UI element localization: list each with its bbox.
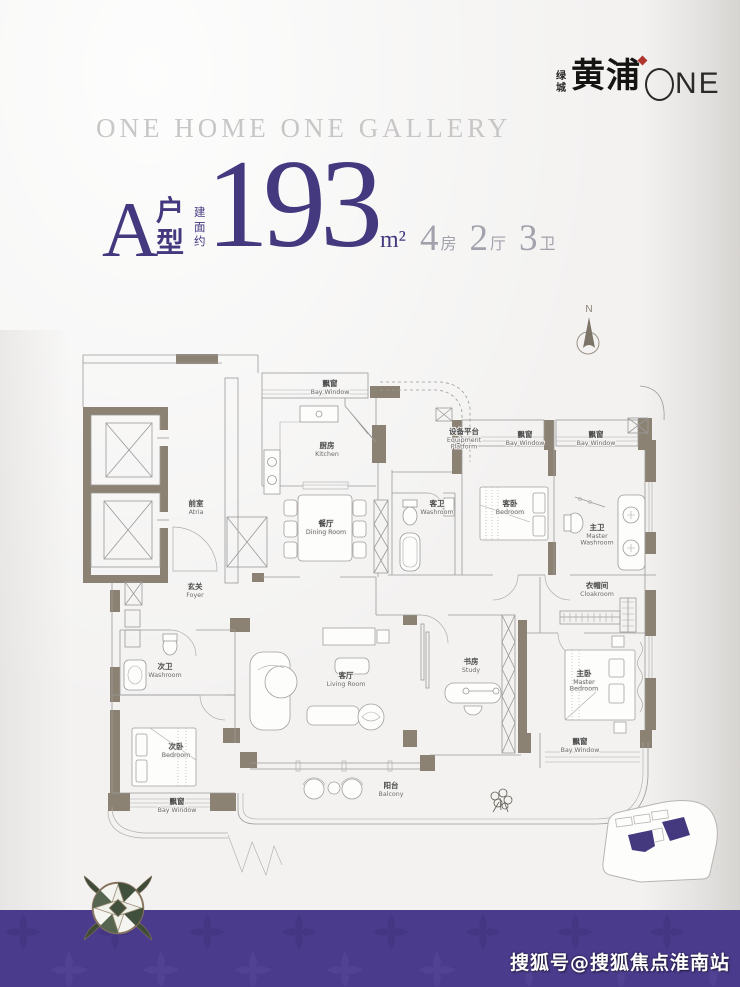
room-sublabel-washroom: Washroom: [420, 509, 453, 516]
room-sublabel-equipment-platform: Platform: [451, 444, 478, 451]
room-label-washroom: 次卫: [158, 661, 173, 671]
room-label-kitchen: 厨房: [320, 440, 335, 450]
room-label-atria: 前室: [189, 498, 204, 508]
compass-label: N: [585, 304, 592, 315]
brand-main-text: 黄浦: [571, 56, 641, 97]
spec-halls: 2厅: [470, 220, 507, 257]
area-unit: m²: [380, 227, 406, 254]
room-sublabel-living-room: Living Room: [327, 681, 366, 688]
poster: 绿 城 黄浦 NE ONE HOME ONE GALLERY A 户 型 建 面…: [0, 0, 740, 987]
room-label-balcony: 阳台: [384, 780, 399, 790]
room-label-bay-window: 飘窗: [170, 796, 185, 806]
room-label-study: 书房: [464, 656, 479, 666]
room-sublabel-balcony: Balcony: [379, 791, 404, 798]
emblem-medallion-icon: [84, 874, 152, 942]
brand-prefix-char: 绿: [556, 71, 566, 82]
room-sublabel-cloakroom: Cloakroom: [580, 591, 614, 598]
area-prefix-label: 建 面 约: [194, 207, 206, 248]
room-sublabel-bedroom: Bedroom: [496, 509, 524, 516]
room-label-bedroom: 客卧: [502, 498, 518, 508]
brand-prefix: 绿 城: [556, 71, 566, 94]
room-label-bay-window: 飘窗: [518, 429, 533, 439]
room-label-bay-window: 飘窗: [589, 429, 604, 439]
area-value: 193: [206, 148, 377, 261]
room-sublabel-bay-window: Bay Window: [311, 389, 350, 396]
room-label-equipment-platform: 设备平台: [449, 426, 479, 436]
spec-rooms: 4房: [420, 220, 457, 257]
plant-icon: [491, 789, 512, 812]
room-sublabel-master-washroom: Washroom: [580, 540, 613, 547]
unit-letter: A: [102, 191, 158, 269]
room-label-bay-window: 飘窗: [573, 736, 588, 746]
room-sublabel-bedroom: Bedroom: [162, 752, 190, 759]
room-sublabel-dining-room: Dining Room: [306, 529, 346, 536]
room-sublabel-atria: Atria: [189, 509, 204, 516]
room-sublabel-bay-window: Bay Window: [561, 747, 600, 754]
room-label-cloakroom: 衣帽间: [586, 580, 609, 590]
room-label-washroom: 客卫: [429, 498, 445, 508]
room-sublabel-master-bedroom: Bedroom: [570, 686, 598, 693]
room-sublabel-bay-window: Bay Window: [577, 440, 616, 447]
room-sublabel-bay-window: Bay Window: [158, 807, 197, 814]
north-compass-icon: N: [577, 304, 599, 354]
spec-baths: 3卫: [519, 220, 556, 257]
brand-prefix-char: 城: [556, 83, 566, 94]
room-sublabel-study: Study: [462, 667, 480, 674]
room-label-master-bedroom: 主卧: [577, 668, 592, 678]
room-sublabel-foyer: Foyer: [186, 592, 204, 599]
watermark: 搜狐号@搜狐焦点淮南站: [510, 948, 730, 975]
room-label-foyer: 玄关: [188, 581, 203, 591]
room-label-bay-window: 飘窗: [323, 378, 338, 388]
room-label-living-room: 客厅: [338, 670, 354, 680]
brand-logo: 绿 城 黄浦 NE: [556, 56, 721, 114]
floor-plan: N: [0, 290, 740, 890]
room-sublabel-kitchen: Kitchen: [315, 451, 339, 458]
room-label-dining-room: 餐厅: [318, 518, 334, 528]
room-label-master-washroom: 主卫: [590, 522, 605, 532]
brand-suffix: NE: [675, 67, 721, 100]
room-label-bedroom: 次卧: [169, 741, 184, 751]
unit-specs: 4房 2厅 3卫: [420, 220, 556, 257]
key-plan: [603, 801, 717, 882]
unit-type-label: 户 型: [156, 197, 184, 257]
logo-circle-o-icon: [645, 68, 674, 101]
room-sublabel-washroom: Washroom: [148, 672, 181, 679]
room-sublabel-bay-window: Bay Window: [506, 440, 545, 447]
